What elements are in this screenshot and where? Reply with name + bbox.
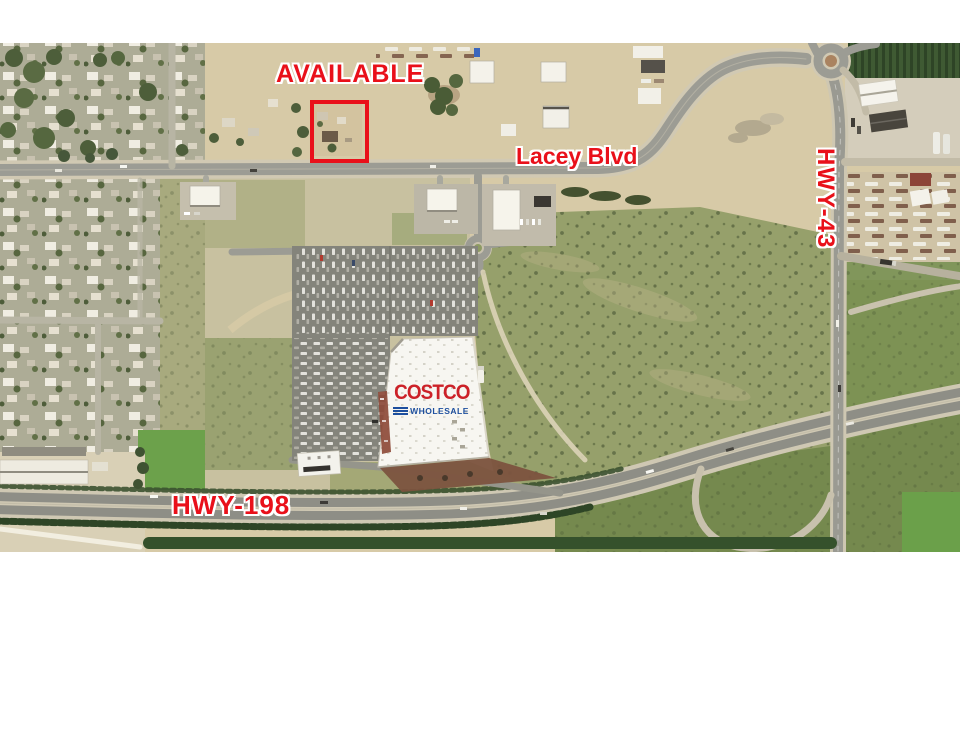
aerial-site-map: AVAILABLE Lacey Blvd HWY-43 HWY-198 COST… [0, 0, 960, 742]
costco-logo-lines [393, 407, 408, 415]
available-parcel-box [310, 100, 369, 163]
aerial-photo [0, 0, 960, 742]
costco-logo: COSTCO WHOLESALE [390, 381, 472, 416]
costco-wholesale-row: WHOLESALE [390, 406, 472, 416]
costco-name-label: COSTCO [394, 381, 468, 405]
costco-wholesale-label: WHOLESALE [410, 406, 469, 416]
greenbelt-strip [143, 537, 837, 549]
hwy-43-label: HWY-43 [813, 148, 837, 249]
lacey-blvd-label: Lacey Blvd [516, 145, 637, 168]
hwy-198-label: HWY-198 [172, 492, 290, 518]
available-label: AVAILABLE [276, 62, 424, 87]
